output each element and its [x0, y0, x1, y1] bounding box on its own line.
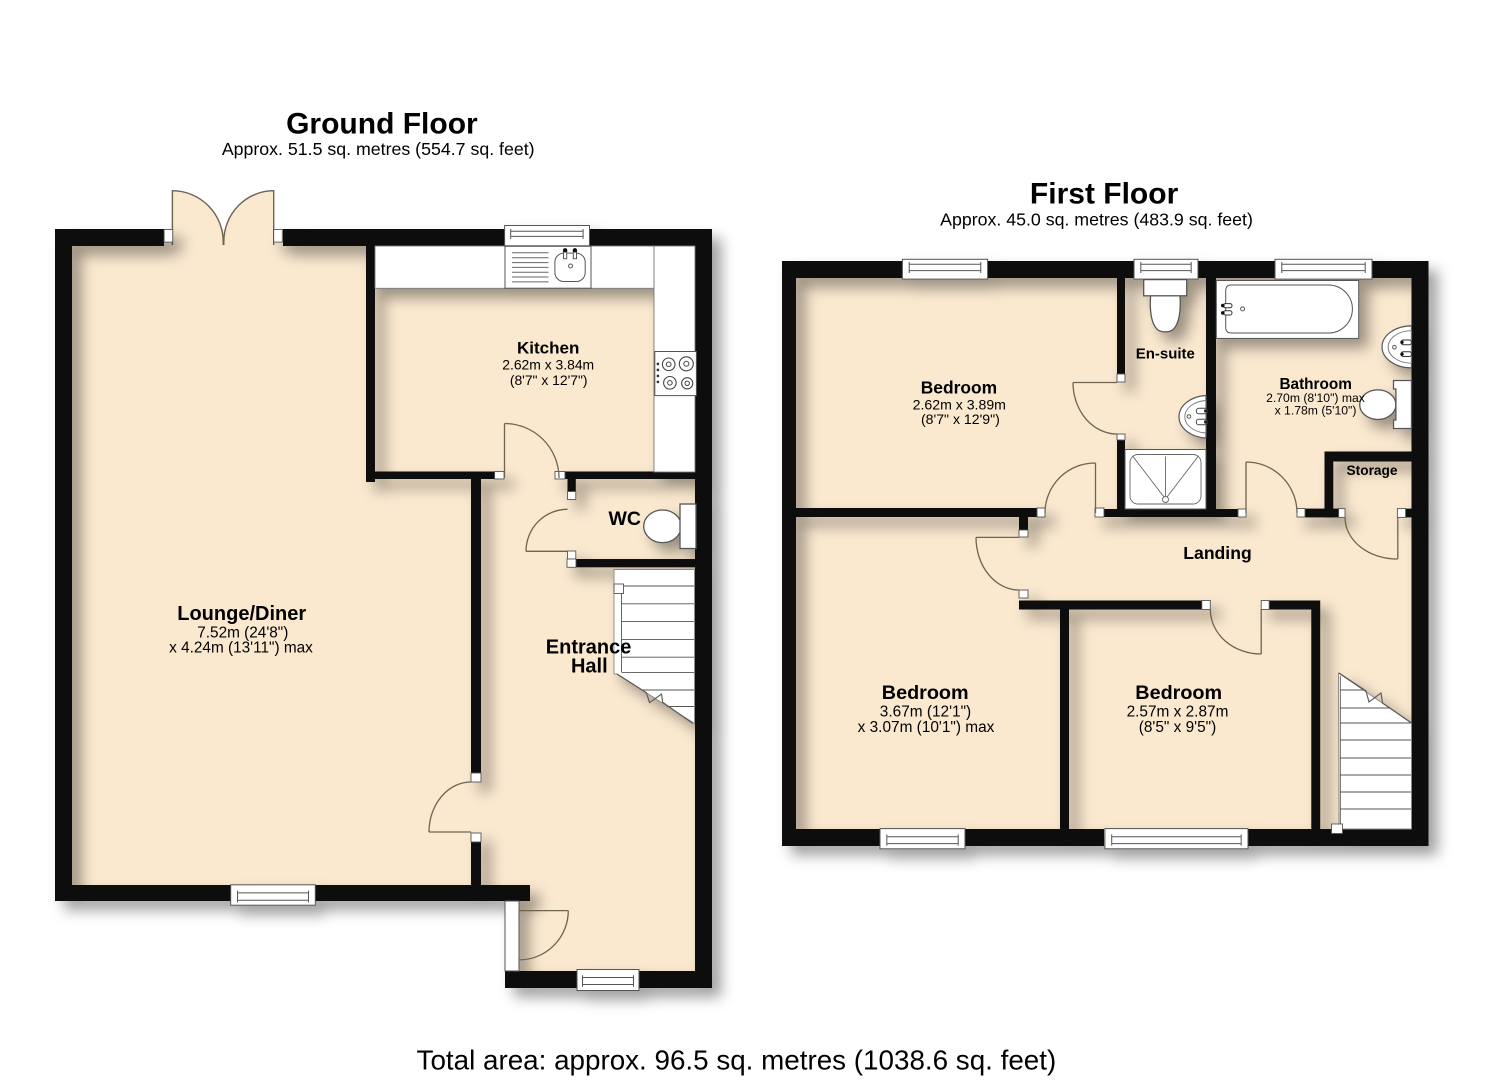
svg-text:Storage: Storage	[1347, 463, 1398, 478]
svg-text:Total area: approx. 96.5 sq. m: Total area: approx. 96.5 sq. metres (103…	[417, 1045, 1057, 1076]
svg-text:Ground Floor: Ground Floor	[286, 108, 478, 141]
svg-text:2.57m x 2.87m: 2.57m x 2.87m	[1127, 704, 1229, 721]
svg-text:x 3.07m (10'1") max: x 3.07m (10'1") max	[858, 719, 995, 736]
svg-text:Kitchen: Kitchen	[517, 339, 579, 358]
svg-text:En-suite: En-suite	[1136, 346, 1195, 363]
svg-text:(8'7" x 12'7"): (8'7" x 12'7")	[510, 372, 588, 388]
svg-text:x 1.78m (5'10"): x 1.78m (5'10")	[1275, 403, 1357, 417]
svg-text:Hall: Hall	[571, 656, 608, 678]
svg-text:Bedroom: Bedroom	[1135, 682, 1222, 704]
svg-text:Approx. 51.5 sq. metres (554.7: Approx. 51.5 sq. metres (554.7 sq. feet)	[222, 139, 535, 159]
svg-text:Bedroom: Bedroom	[921, 377, 997, 397]
svg-text:Approx. 45.0 sq. metres (483.9: Approx. 45.0 sq. metres (483.9 sq. feet)	[940, 210, 1253, 230]
svg-text:3.67m (12'1"): 3.67m (12'1")	[880, 704, 971, 721]
svg-text:2.62m x 3.84m: 2.62m x 3.84m	[502, 357, 594, 373]
svg-text:(8'7" x 12'9"): (8'7" x 12'9")	[921, 411, 1000, 427]
svg-text:WC: WC	[608, 508, 641, 530]
svg-text:x 4.24m (13'11") max: x 4.24m (13'11") max	[169, 639, 313, 656]
svg-text:First Floor: First Floor	[1030, 178, 1179, 211]
svg-text:(8'5" x 9'5"): (8'5" x 9'5")	[1139, 719, 1217, 736]
svg-text:Lounge/Diner: Lounge/Diner	[177, 603, 306, 625]
svg-text:Bedroom: Bedroom	[882, 682, 969, 704]
svg-text:Landing: Landing	[1183, 543, 1251, 563]
